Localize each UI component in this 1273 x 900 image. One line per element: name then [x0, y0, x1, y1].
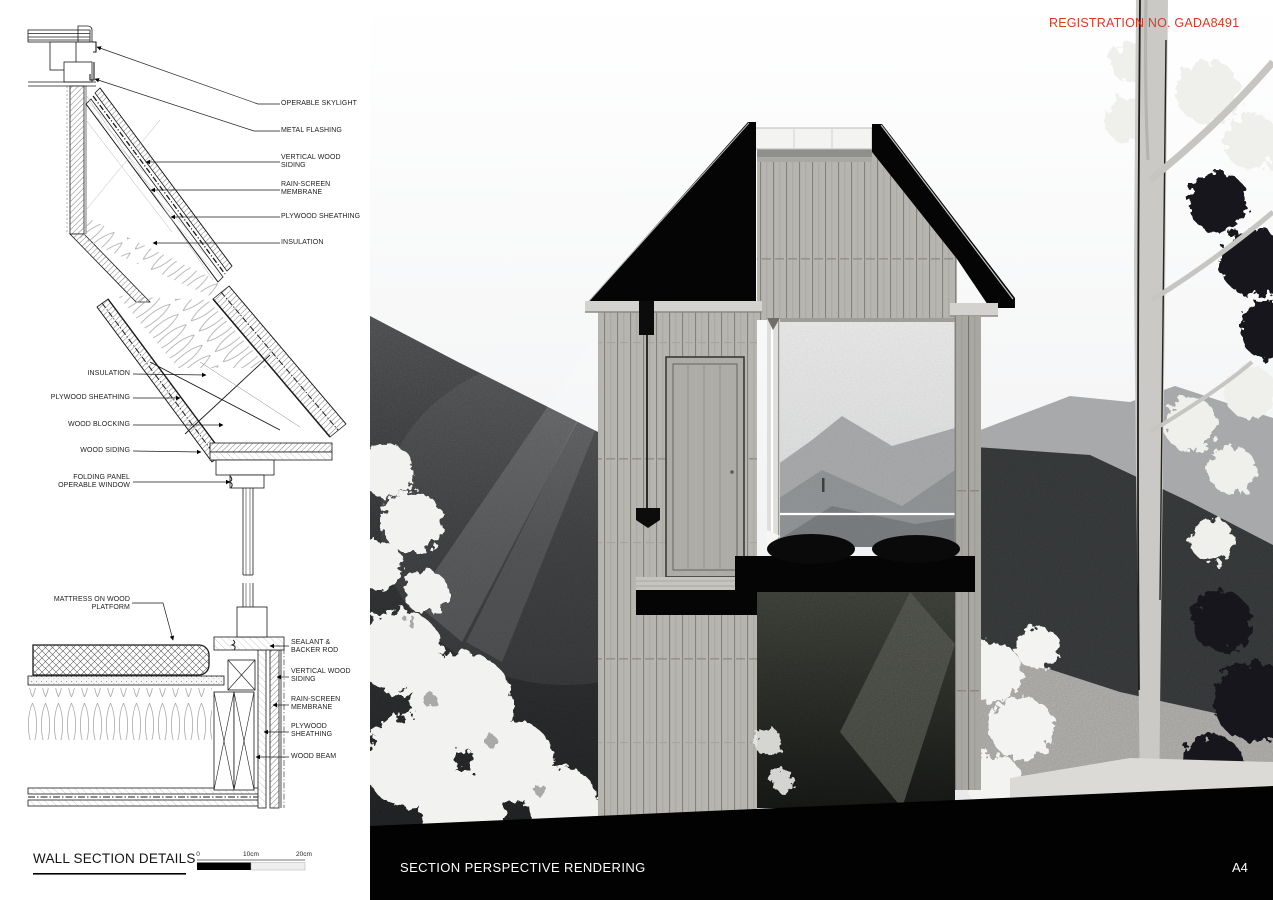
door-panel — [666, 357, 744, 577]
callout-label-sealant-backer-rod: SEALANT & BACKER ROD — [291, 639, 357, 656]
callout-label-plywood-sheathing: PLYWOOD SHEATHING — [281, 213, 371, 221]
pillow-right — [872, 535, 960, 563]
dormer-wood-face — [757, 148, 872, 320]
detail-roof-window-head — [97, 286, 346, 575]
right-post — [955, 316, 981, 790]
callout-label-insulation-2: INSULATION — [40, 370, 130, 378]
section-perspective-rendering — [370, 0, 1273, 900]
rendering-title: SECTION PERSPECTIVE RENDERING — [400, 860, 646, 875]
callout-label-plywood-sheathing-2: PLYWOOD SHEATHING — [40, 394, 130, 402]
folding-window-mullion — [767, 318, 780, 547]
callout-label-wood-siding: WOOD SIDING — [40, 447, 130, 455]
valley-view — [754, 592, 955, 808]
sheet-number: A4 — [1232, 860, 1248, 875]
callout-label-wood-beam: WOOD BEAM — [291, 753, 357, 761]
floor-boards — [636, 577, 745, 592]
callout-label-metal-flashing: METAL FLASHING — [281, 127, 366, 135]
callout-label-vertical-wood-siding-3: VERTICAL WOOD SIDING — [291, 668, 357, 685]
registration-number: REGISTRATION NO. GADA8491 — [1049, 16, 1239, 30]
pillow-left — [767, 534, 855, 564]
callout-label-mattress-platform: MATTRESS ON WOOD PLATFORM — [50, 596, 130, 613]
left-eave — [585, 301, 762, 312]
scale-tick-20cm: 20cm — [291, 851, 317, 858]
cantilever-platform-black — [735, 556, 975, 592]
callout-label-folding-panel-window: FOLDING PANEL OPERABLE WINDOW — [50, 474, 130, 491]
scale-tick-10cm: 10cm — [239, 851, 263, 858]
callout-label-insulation: INSULATION — [281, 239, 366, 247]
callout-label-rain-screen-membrane: RAIN-SCREEN MEMBRANE — [281, 181, 345, 198]
details-panel-title: WALL SECTION DETAILS — [33, 851, 196, 866]
callout-label-wood-blocking: WOOD BLOCKING — [40, 421, 130, 429]
callout-label-operable-skylight: OPERABLE SKYLIGHT — [281, 100, 366, 108]
scale-tick-0: 0 — [192, 851, 204, 858]
callout-label-plywood-sheathing-3: PLYWOOD SHEATHING — [291, 723, 357, 740]
detail-floor-platform — [28, 583, 284, 808]
callout-label-vertical-wood-siding: VERTICAL WOOD SIDING — [281, 154, 345, 171]
right-eave — [950, 303, 998, 316]
architecture-sheet: REGISTRATION NO. GADA8491 OPERABLE SKYLI… — [0, 0, 1273, 900]
detail-skylight-roof — [28, 26, 232, 302]
callout-label-rain-screen-membrane-3: RAIN-SCREEN MEMBRANE — [291, 696, 357, 713]
window-view — [767, 318, 955, 547]
